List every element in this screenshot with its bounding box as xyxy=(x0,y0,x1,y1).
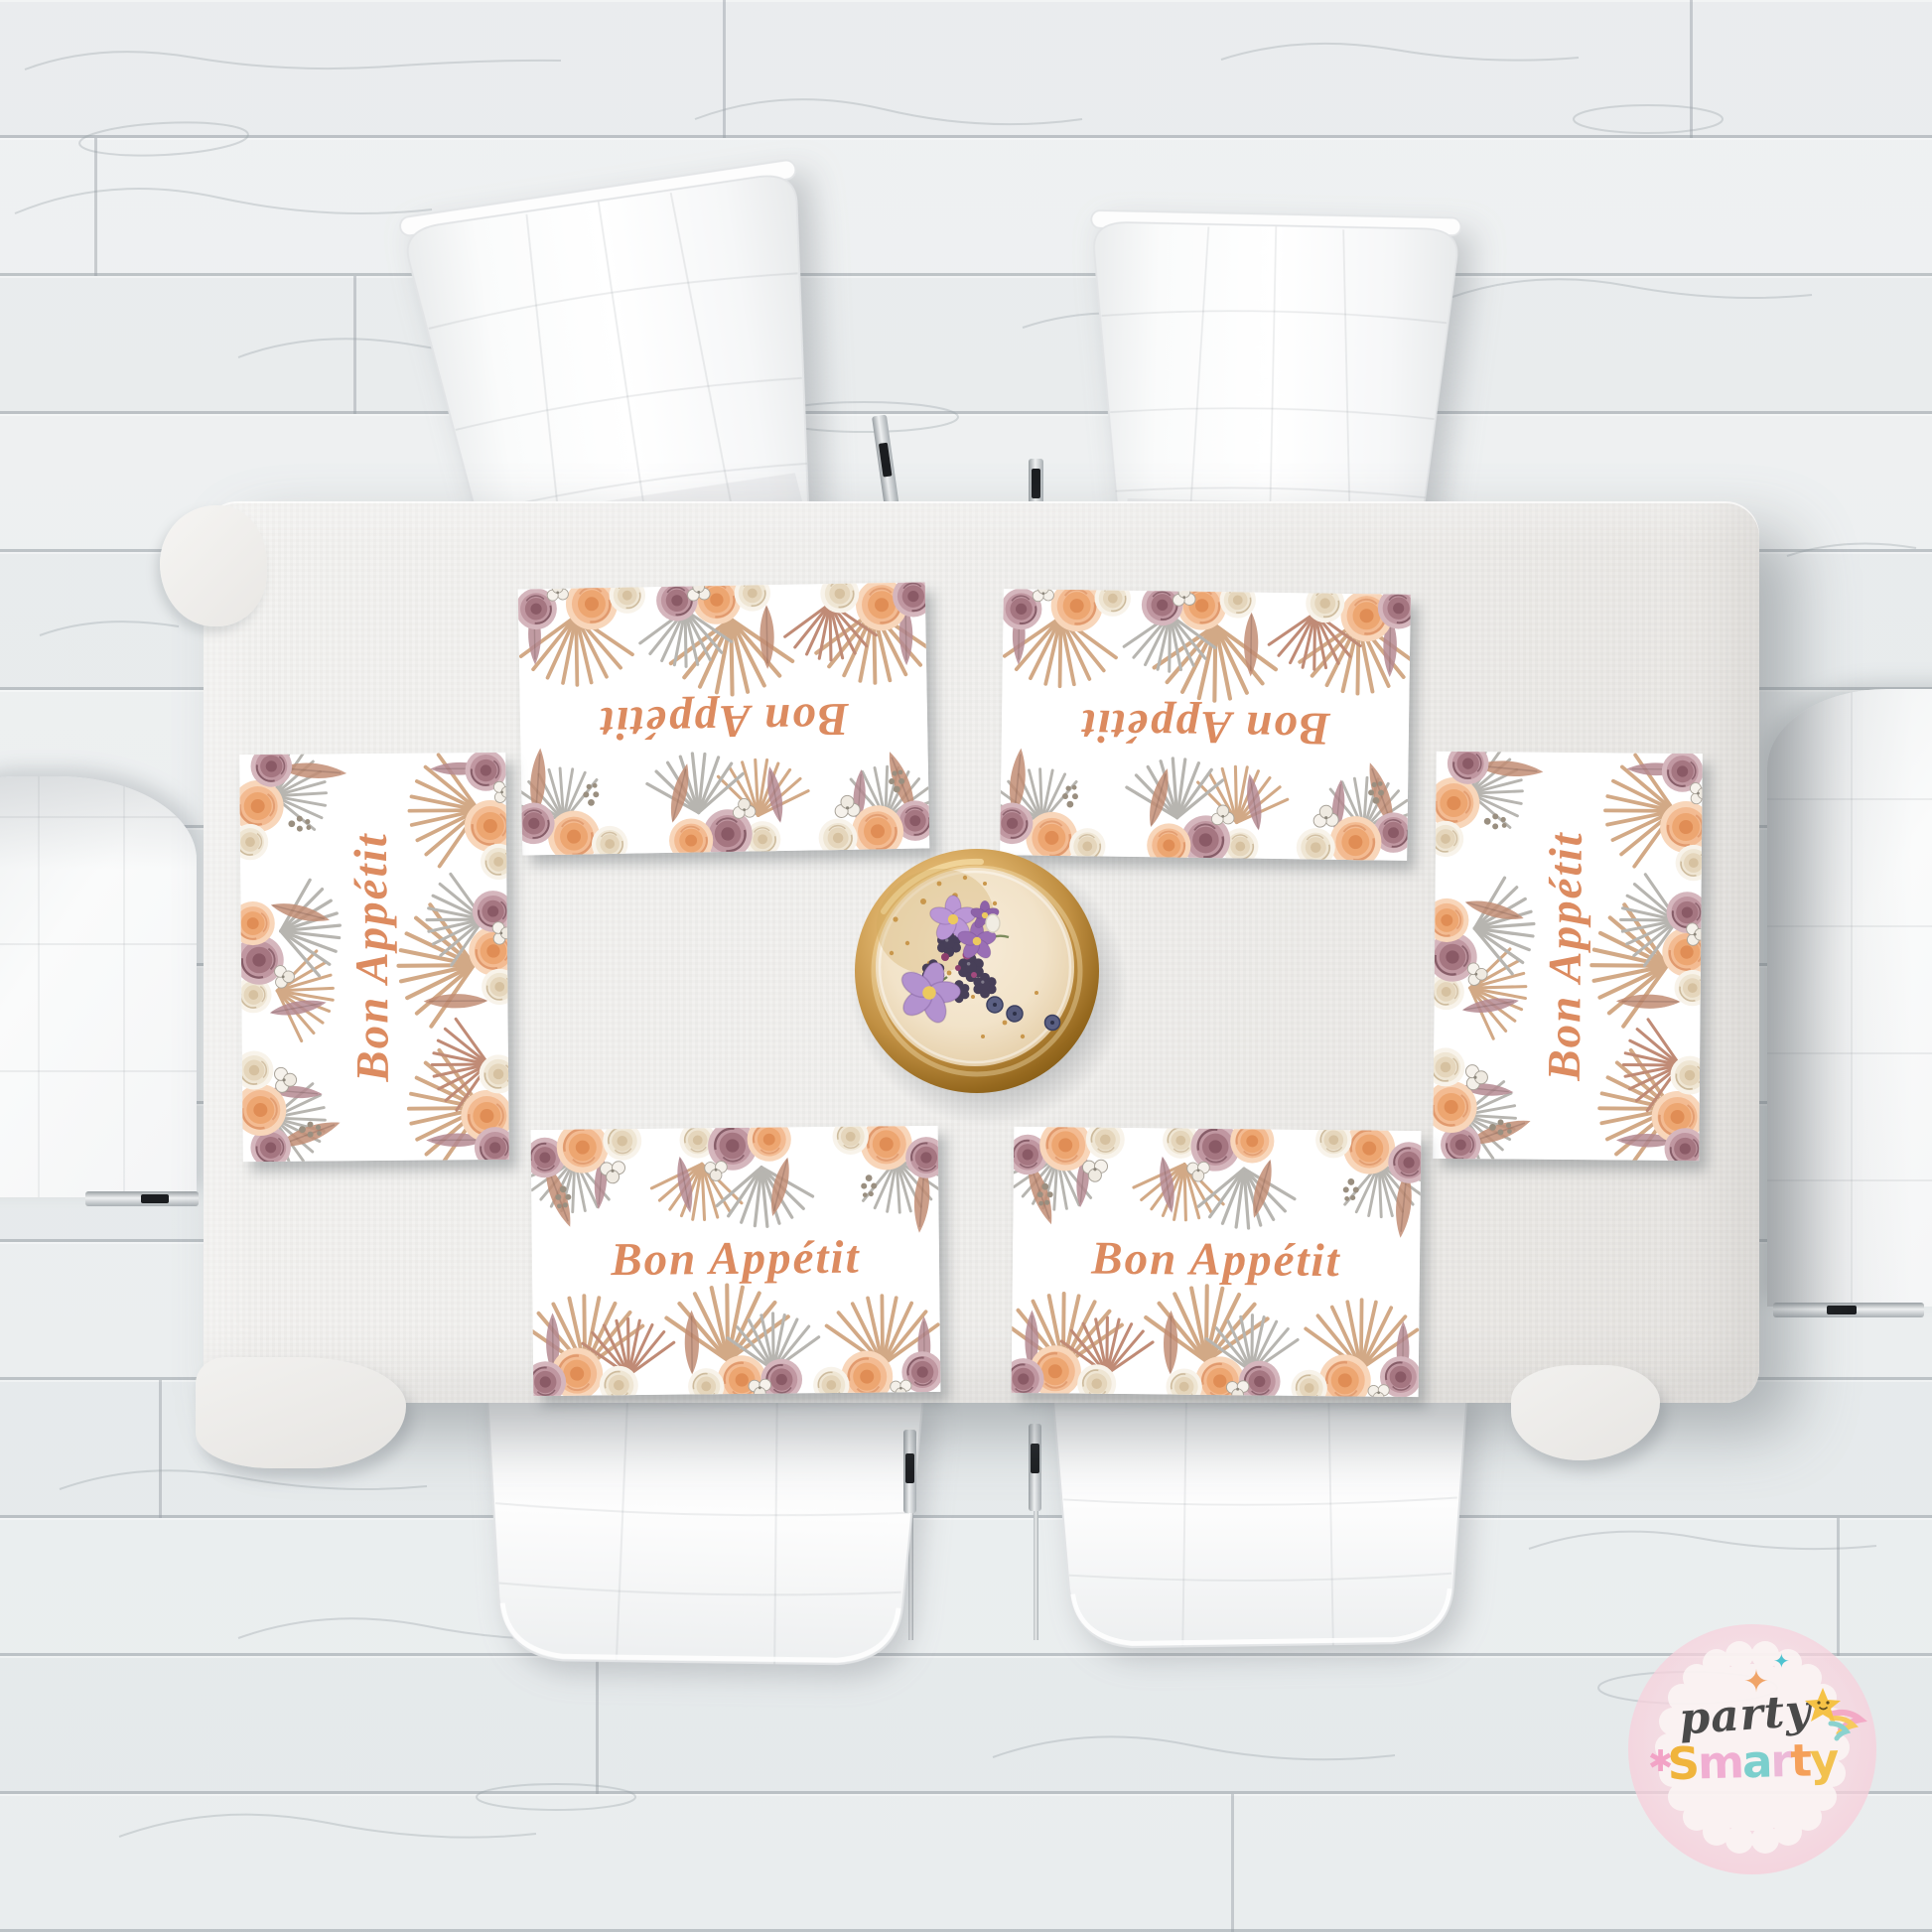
placemat-bottom-right: Bon Appétit xyxy=(1012,1127,1422,1397)
chair-frame-grip xyxy=(1031,1444,1039,1473)
placemat-label: Bon Appétit xyxy=(344,754,401,1161)
chair-frame-bracket xyxy=(85,1191,199,1206)
chair-bottom-right xyxy=(1031,1386,1489,1670)
placemat-label: Bon Appétit xyxy=(532,1230,940,1288)
placemat-mockup-scene: Bon Appétit Bon Appétit Bon Appétit Bon … xyxy=(0,0,1932,1932)
placemat-label: Bon Appétit xyxy=(1013,1231,1421,1289)
placemat-top-right: Bon Appétit xyxy=(1000,589,1411,861)
brand-letter: m xyxy=(1697,1735,1742,1789)
chair-right-shading xyxy=(1767,689,1932,1307)
tablecloth-fold-bottom-left xyxy=(196,1357,406,1468)
cake-centerpiece xyxy=(832,822,1130,1128)
brand-letter: a xyxy=(1741,1735,1771,1789)
plank-joint xyxy=(1231,1794,1234,1932)
sparkle-icon: ✦ xyxy=(1773,1652,1790,1672)
brand-letter: r xyxy=(1770,1734,1792,1788)
chair-frame-grip xyxy=(1032,469,1040,498)
placemat-bottom-left: Bon Appétit xyxy=(531,1126,941,1396)
chair-frame-grip xyxy=(879,443,893,478)
plank-joint xyxy=(159,1380,162,1518)
chair-frame-bracket xyxy=(1773,1303,1924,1317)
chair-right xyxy=(1767,689,1932,1307)
chair-frame-bracket xyxy=(903,1430,916,1513)
plank-joint xyxy=(353,276,356,414)
placemat-label: Bon Appétit xyxy=(1002,697,1410,757)
chair-left-shading xyxy=(0,776,197,1197)
chair-frame-grip xyxy=(1827,1306,1857,1314)
chair-bottom-left xyxy=(471,1382,931,1697)
chair-frame-bracket xyxy=(1029,1424,1041,1511)
placemat-label: Bon Appétit xyxy=(1537,753,1594,1160)
placemat-label: Bon Appétit xyxy=(520,691,928,752)
placemat-left: Bon Appétit xyxy=(239,753,509,1162)
chair-left xyxy=(0,776,197,1197)
chair-frame-grip xyxy=(141,1194,169,1203)
tablecloth-fold-top-left xyxy=(160,505,267,626)
shooting-star-icon xyxy=(1799,1686,1870,1749)
plank-joint xyxy=(1690,0,1693,138)
placemat-right: Bon Appétit xyxy=(1433,752,1703,1161)
brand-letter: S xyxy=(1667,1736,1699,1790)
chair-frame-grip xyxy=(905,1453,914,1483)
plank-joint xyxy=(94,138,97,276)
plank-joint xyxy=(723,0,726,138)
watermark-badge: ✦ ✦ ✱ party Smarty xyxy=(1628,1624,1876,1874)
placemat-top-left: Bon Appétit xyxy=(518,582,930,855)
